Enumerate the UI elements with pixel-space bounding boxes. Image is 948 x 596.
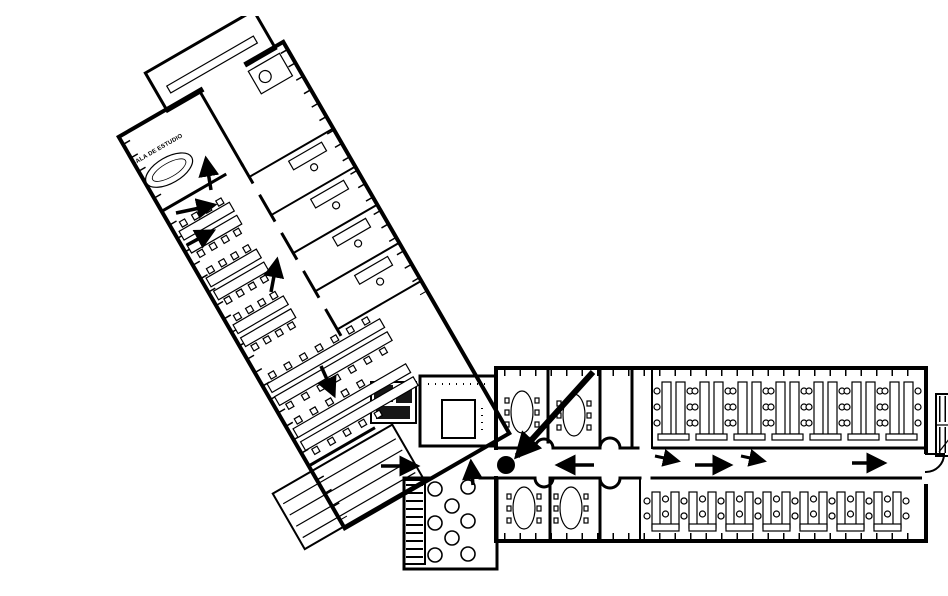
route-arrow	[271, 260, 277, 292]
lobby-table	[428, 482, 442, 496]
lobby-table	[445, 499, 459, 513]
east-wing	[492, 368, 944, 541]
lobby-table	[445, 531, 459, 545]
office-row	[242, 116, 424, 334]
meeting-table	[554, 487, 588, 529]
corridor-wall-bottom	[497, 478, 926, 488]
meeting-table	[557, 394, 591, 436]
open-plan-top	[654, 382, 921, 440]
entrance-canopy	[145, 16, 276, 113]
floor-plan-figure: SALA DE ESTUDIO	[40, 16, 948, 580]
lobby-walls	[404, 478, 497, 569]
route-arrow	[741, 456, 764, 461]
meeting-table	[505, 391, 539, 433]
open-plan-bottom	[644, 492, 909, 531]
route-start-dot	[497, 456, 515, 474]
lobby-table	[428, 516, 442, 530]
route-arrow	[655, 456, 678, 461]
external-stair	[936, 394, 948, 456]
lobby-table	[428, 548, 442, 562]
lobby-table	[461, 547, 475, 561]
route-arrow	[471, 462, 473, 485]
elevator-shaft	[442, 400, 475, 438]
meeting-table	[507, 487, 541, 529]
floor-plan-svg: SALA DE ESTUDIO	[40, 16, 948, 580]
lobby-table	[461, 514, 475, 528]
sala-room: SALA DE ESTUDIO	[117, 90, 242, 212]
northwest-wing: SALA DE ESTUDIO	[59, 16, 510, 551]
lobby-tables	[428, 480, 475, 562]
